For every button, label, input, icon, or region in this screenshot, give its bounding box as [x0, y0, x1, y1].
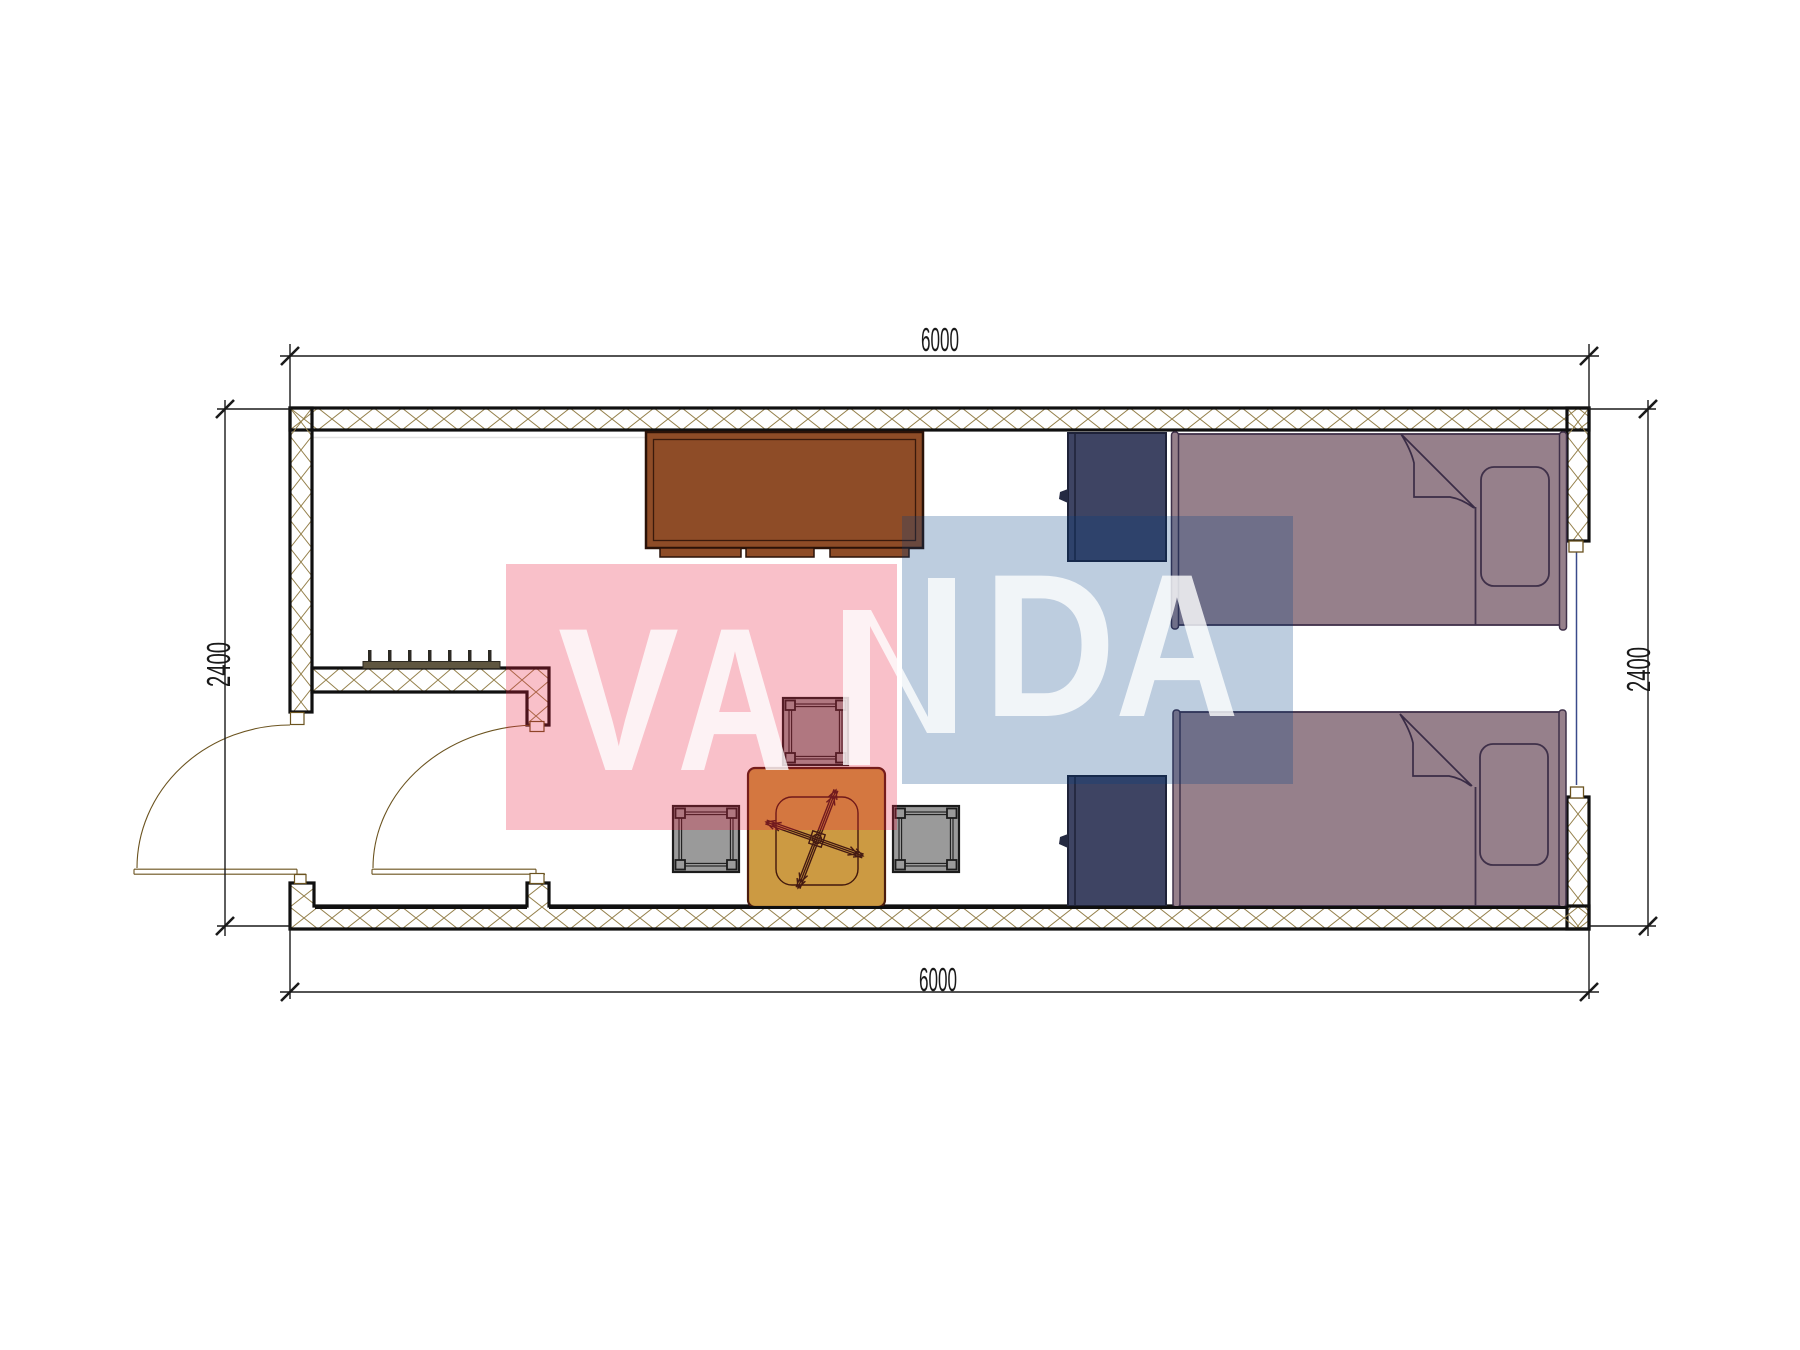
svg-text:D: D	[983, 532, 1116, 760]
svg-text:A: A	[1115, 532, 1239, 760]
svg-text:2400: 2400	[1620, 647, 1657, 692]
svg-text:A: A	[677, 586, 793, 814]
svg-text:V: V	[558, 586, 679, 814]
svg-text:6000: 6000	[921, 321, 959, 358]
svg-text:6000: 6000	[919, 961, 957, 998]
svg-text:2400: 2400	[200, 642, 237, 687]
